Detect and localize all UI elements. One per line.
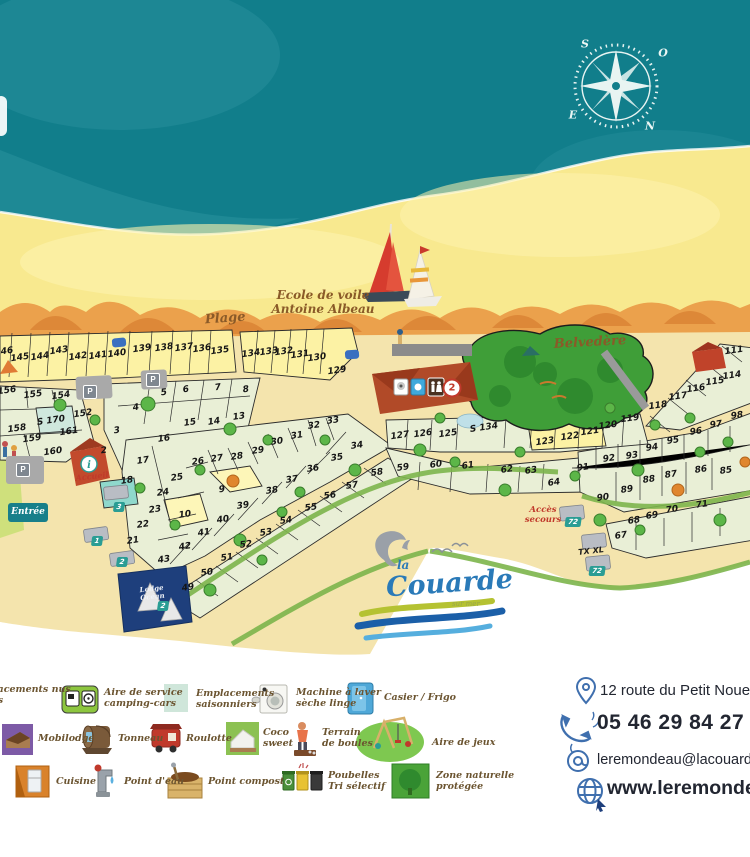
- legend-label-barrel: Tonneau: [118, 733, 163, 744]
- plot-number: 126: [413, 428, 433, 441]
- plot-number: 98: [730, 410, 744, 422]
- plot-number: 61: [461, 460, 475, 472]
- sanitary-tag: 2: [157, 601, 169, 611]
- plot-number: S 134: [469, 421, 499, 435]
- sanitary-tag: 2: [116, 557, 128, 567]
- reception-label: Accueil: [70, 469, 115, 484]
- plot-number: 51: [220, 552, 234, 564]
- sanitary-tag: 72: [588, 566, 605, 576]
- plot-number: 10: [178, 509, 192, 521]
- plot-number: 49: [181, 582, 195, 594]
- belvedere-label: Belvedère: [548, 333, 633, 352]
- plot-number: 59: [396, 462, 410, 474]
- plot-number: 4: [132, 403, 140, 414]
- plot-number: 25: [170, 472, 184, 484]
- plot-number: 23: [148, 504, 162, 516]
- legend-label-washer: Machine à laver sèche linge: [296, 687, 381, 709]
- plot-number: 95: [666, 435, 680, 447]
- logo-subtitle: sur mer: [452, 600, 480, 608]
- plot-number: 57: [345, 480, 359, 492]
- plot-number: 92: [602, 453, 616, 465]
- email-text[interactable]: leremondeau@lacouard: [597, 752, 750, 768]
- legend-label-bins: Poubelles Tri sélectif: [328, 770, 385, 792]
- plot-number: 29: [251, 445, 265, 457]
- plot-number: 16: [157, 433, 171, 445]
- plot-number: 85: [719, 465, 733, 477]
- plot-number: 52: [239, 539, 253, 551]
- plot-number: 143: [49, 345, 69, 358]
- plot-number: 129: [327, 365, 347, 378]
- plot-number: 145: [10, 352, 30, 365]
- legend-label-water: Point d'eau: [124, 776, 184, 787]
- legend-label-coco: Coco sweet: [263, 727, 293, 749]
- plot-number: 7: [214, 383, 222, 394]
- plot-number: 156: [0, 385, 17, 398]
- website-text[interactable]: www.leremonde: [607, 777, 750, 800]
- plot-number: 50: [200, 567, 214, 579]
- plot-number: 127: [390, 430, 410, 443]
- plot-number: 88: [642, 474, 656, 486]
- plot-number: 5: [160, 388, 168, 399]
- plot-number: 121: [580, 426, 600, 439]
- campsite-map-poster: i: [0, 0, 750, 857]
- plot-number: 158: [7, 423, 27, 436]
- plot-number: 111: [724, 345, 744, 358]
- legend-label-zone: Zone naturelle protégée: [436, 770, 514, 792]
- plot-number: 117: [668, 391, 688, 404]
- compass-letter: E: [569, 109, 577, 122]
- plot-number: 134: [241, 348, 261, 361]
- compass-letter: O: [658, 47, 668, 60]
- plot-number: 54: [279, 515, 293, 527]
- parking-sign: P: [83, 385, 97, 399]
- plot-number: 67: [614, 530, 628, 542]
- plot-number: 43: [157, 554, 171, 566]
- legend-label-seasonal: Emplacements saisonniers: [196, 688, 274, 710]
- sanitary-tag: 1: [91, 536, 103, 546]
- sanitary-tag: 3: [113, 502, 125, 512]
- plot-number: 130: [307, 352, 327, 365]
- legend-label-camper-service: Aire de service camping-cars: [104, 687, 183, 709]
- plot-number: 55: [304, 502, 318, 514]
- plot-number: 86: [694, 464, 708, 476]
- plot-number: 37: [285, 474, 299, 486]
- lodge-ocean-label: Lodge Océan: [125, 582, 178, 603]
- plot-number: 42: [178, 541, 192, 553]
- plot-number: 90: [596, 492, 610, 504]
- plot-number: 18: [120, 475, 134, 487]
- legend-label-kitchen: Cuisine: [56, 776, 96, 787]
- plot-number: 36: [306, 463, 320, 475]
- plot-number: 93: [625, 450, 639, 462]
- plot-number: 155: [23, 389, 43, 402]
- plot-number: 63: [524, 465, 538, 477]
- entrance-sign: Entrée: [8, 503, 48, 522]
- plot-number: 122: [560, 431, 580, 444]
- legend-label-locker: Casier / Frigo: [384, 692, 456, 703]
- sailing-school-line1: Ecole de voile: [258, 288, 388, 302]
- plot-number: 89: [620, 484, 634, 496]
- plot-number: 144: [30, 351, 50, 364]
- plot-number: 2: [100, 446, 108, 457]
- plot-number: 34: [350, 440, 364, 452]
- plot-number: 24: [156, 487, 170, 499]
- plot-number: S 170: [36, 414, 66, 428]
- plot-number: 14: [207, 416, 221, 428]
- plot-number: 123: [535, 436, 555, 449]
- plot-number: 3: [113, 426, 121, 437]
- plot-number: 96: [689, 426, 703, 438]
- plot-number: 31: [290, 430, 304, 442]
- plot-number: 27: [210, 453, 224, 465]
- legend-label-mobilodge: Mobilodge: [38, 733, 94, 744]
- plot-number: 125: [438, 428, 458, 441]
- plot-number: 33: [326, 415, 340, 427]
- plot-number: 138: [154, 342, 174, 355]
- plot-number: 115: [705, 376, 725, 389]
- plot-number: 152: [73, 408, 93, 421]
- plot-number: 41: [197, 527, 211, 539]
- plot-number: 69: [645, 510, 659, 522]
- address-text: 12 route du Petit Noue: [600, 682, 750, 699]
- plot-number: 154: [51, 390, 71, 403]
- plot-number: 53: [259, 527, 273, 539]
- plot-number: 120: [598, 420, 618, 433]
- legend-label-compost: Point compost: [208, 776, 284, 787]
- plot-number: 38: [265, 485, 279, 497]
- plot-number: 28: [230, 451, 244, 463]
- plot-number: 97: [709, 419, 723, 431]
- plot-number: 68: [627, 515, 641, 527]
- plot-number: 6: [182, 385, 190, 396]
- plot-number: 135: [210, 345, 230, 358]
- plot-number: 91: [576, 462, 590, 474]
- plot-number: 71: [695, 499, 709, 511]
- sanitary-tag: 72: [564, 517, 581, 527]
- plot-number: 114: [722, 370, 742, 383]
- plot-number: 9: [218, 485, 226, 496]
- plot-number: 142: [68, 351, 88, 364]
- plot-number: 22: [136, 519, 150, 531]
- plot-number: 39: [236, 500, 250, 512]
- plot-number: 58: [370, 467, 384, 479]
- plot-number: 159: [22, 433, 42, 446]
- plot-number: 8: [242, 385, 250, 396]
- sailing-school-line2: Antoine Albeau: [258, 302, 388, 316]
- plot-number: 60: [429, 459, 443, 471]
- plot-number: 118: [648, 400, 668, 413]
- plot-number: 62: [500, 464, 514, 476]
- plot-number: 94: [645, 442, 659, 454]
- building-badge: 2: [443, 379, 462, 398]
- plot-number: 15: [183, 417, 197, 429]
- compass-letter: N: [645, 120, 655, 133]
- plot-number: 161: [59, 426, 79, 439]
- plot-number: 32: [307, 420, 321, 432]
- plot-number: 116: [686, 383, 706, 396]
- plot-number: 160: [43, 446, 63, 459]
- map-annotation: TX XL: [578, 545, 604, 557]
- plot-number: 136: [192, 343, 212, 356]
- plot-number: 64: [547, 477, 561, 489]
- plot-number: 21: [126, 535, 140, 547]
- legend-label-petanque: Terrain de boules: [322, 727, 373, 749]
- plage-label: Plage: [205, 310, 246, 328]
- emergency-access-line1: Accès: [512, 505, 574, 515]
- plot-number: 30: [270, 436, 284, 448]
- legend-label-wagon: Roulotte: [186, 733, 232, 744]
- plot-number: 119: [620, 413, 640, 426]
- plot-number: 40: [216, 514, 230, 526]
- plot-number: 35: [330, 452, 344, 464]
- plot-number: 141: [88, 350, 108, 363]
- plot-number: 70: [665, 504, 679, 516]
- legend-label-playground: Aire de jeux: [432, 737, 495, 748]
- plot-number: 56: [323, 490, 337, 502]
- plot-number: 13: [232, 411, 246, 423]
- parking-sign: P: [16, 463, 30, 477]
- plot-number: 140: [107, 348, 127, 361]
- legend-label-tent-pitch: Emplacements nus tentes: [0, 684, 71, 706]
- plot-number: 137: [174, 342, 194, 355]
- plot-number: 17: [136, 455, 150, 467]
- plot-number: 139: [132, 343, 152, 356]
- parking-sign: P: [146, 373, 160, 387]
- plot-number: 87: [664, 469, 678, 481]
- sailing-school-label: Ecole de voile Antoine Albeau: [258, 288, 388, 316]
- plot-number: 26: [191, 456, 205, 468]
- phone-number[interactable]: 05 46 29 84 27: [597, 711, 744, 735]
- compass-letter: S: [581, 38, 589, 51]
